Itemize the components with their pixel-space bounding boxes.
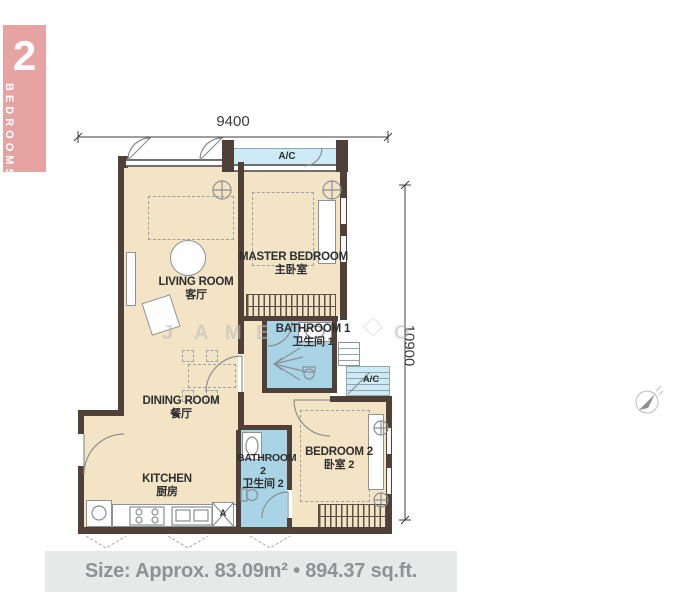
watermark-letter: J	[162, 322, 173, 345]
dining-room-cn: 餐厅	[131, 408, 231, 422]
label-bathroom1: BATHROOM 1 卫生间 1	[268, 322, 358, 350]
badge-count: 2	[3, 25, 46, 79]
kitchen-cn: 厨房	[117, 486, 217, 500]
master-bedroom-cn: 主卧室	[239, 264, 343, 278]
bathroom2-en: BATHROOM 2	[237, 452, 289, 478]
bathroom1-cn: 卫生间 1	[268, 336, 358, 350]
watermark-letter: A	[194, 322, 208, 345]
label-ac-side: A/C	[352, 374, 390, 385]
dining-room-en: DINING ROOM	[131, 394, 231, 408]
dimension-right-value: 10900	[401, 306, 418, 386]
label-bedroom2: BEDROOM 2 卧室 2	[292, 445, 386, 473]
kitchen-en: KITCHEN	[117, 472, 217, 486]
label-dining-room: DINING ROOM 餐厅	[131, 394, 231, 422]
bedroom2-cn: 卧室 2	[292, 459, 386, 473]
compass-icon	[636, 386, 663, 413]
plan-linework	[0, 0, 677, 600]
label-master-bedroom: MASTER BEDROOM 主卧室	[239, 250, 343, 278]
label-living-room: LIVING ROOM 客厅	[146, 275, 246, 303]
label-ac-top: A/C	[262, 151, 312, 162]
dimension-top-value: 9400	[203, 113, 263, 130]
living-room-en: LIVING ROOM	[146, 275, 246, 289]
label-kitchen-a-marker: A	[212, 508, 234, 518]
badge-label: BEDROOMS	[3, 83, 15, 180]
floorplan-page: { "badge": {"count": "2", "label": "BEDR…	[0, 0, 677, 600]
watermark-letter: O	[394, 322, 410, 345]
bedroom2-en: BEDROOM 2	[292, 445, 386, 459]
label-kitchen: KITCHEN 厨房	[117, 472, 217, 500]
watermark-letter: E	[256, 322, 269, 345]
size-bar: Size: Approx. 83.09m² • 894.37 sq.ft.	[45, 551, 457, 592]
label-bathroom2: BATHROOM 2 卫生间 2	[237, 452, 289, 492]
master-bedroom-en: MASTER BEDROOM	[239, 250, 343, 264]
living-room-cn: 客厅	[146, 289, 246, 303]
bathroom1-en: BATHROOM 1	[268, 322, 358, 336]
watermark-letter: M	[225, 322, 242, 345]
bathroom2-cn: 卫生间 2	[237, 478, 289, 492]
bedrooms-badge: 2 BEDROOMS	[3, 25, 46, 172]
